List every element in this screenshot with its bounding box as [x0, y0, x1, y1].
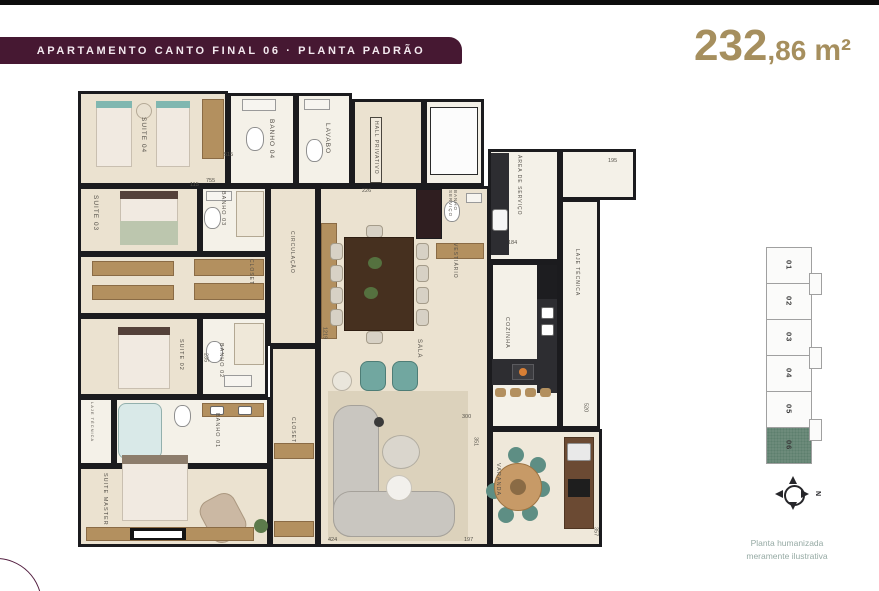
room-label-laje-tecnica-direita: LAJE TÉCNICA — [574, 249, 580, 296]
room-hall-privativo — [352, 99, 424, 186]
furniture-bed-blanket — [120, 221, 178, 245]
room-laje-tecnica-direita — [560, 199, 600, 429]
dimension-label: 1219 — [321, 327, 327, 339]
disclaimer-line-2: meramente ilustrativa — [712, 550, 862, 563]
room-label-laje-tecnica-esquerda: LAJE TÉCNICA — [90, 402, 95, 442]
furniture-centerpiece — [510, 479, 526, 495]
dimension-label: 195 — [608, 159, 617, 165]
room-label-suite-master: SUITE MASTER — [102, 473, 108, 526]
furniture-dining-chair — [366, 331, 383, 344]
furniture-armchair — [392, 361, 418, 391]
keyplan-unit-label: 02 — [785, 296, 794, 306]
furniture-bed-single — [156, 101, 190, 167]
compass-arrow-up — [789, 476, 797, 484]
furniture-toilet — [306, 139, 323, 162]
furniture-sink-counter — [224, 375, 252, 387]
furniture-side-table — [386, 475, 412, 501]
dimension-label: 184 — [508, 241, 517, 247]
furniture-bed-headboard — [122, 455, 188, 464]
area-decimal: ,86 — [767, 37, 806, 65]
furniture-dining-chair — [416, 265, 429, 282]
furniture-wardrobe — [202, 99, 224, 159]
furniture-sink — [541, 324, 554, 336]
dimension-label: 235 — [202, 353, 208, 362]
furniture-sink-counter — [466, 193, 482, 203]
compass-icon: N — [776, 477, 812, 513]
furniture-dresser — [92, 285, 174, 300]
keyplan-elevator-notch — [809, 347, 822, 369]
dimension-label: 300 — [462, 415, 471, 421]
furniture-dining-chair — [416, 287, 429, 304]
dimension-label: 115 — [190, 183, 199, 189]
room-label-suite-03: SUITE 03 — [92, 195, 99, 231]
furniture-washer — [492, 209, 508, 231]
room-label-sala: SALA — [416, 339, 422, 358]
furniture-wine-rack — [416, 189, 442, 239]
room-label-circulacao: CIRCULAÇÃO — [289, 231, 295, 274]
furniture-wardrobe — [194, 283, 264, 300]
compass-arrow-left — [775, 490, 783, 498]
furniture-coffee-table — [382, 435, 420, 469]
furniture-sink — [541, 307, 554, 319]
room-label-banho-servico: BANHO SERVIÇO — [448, 190, 458, 236]
room-label-suite-04: SUITE 04 — [140, 117, 147, 153]
room-label-vestiario: VESTIÁRIO — [452, 243, 458, 279]
furniture-sink — [238, 406, 252, 415]
floorplan: SUITE 04BANHO 04LAVABOHALL PRIVATIVOBANH… — [78, 91, 638, 547]
dimension-label: 424 — [328, 538, 337, 544]
keyplan-unit-04[interactable]: 04 — [766, 355, 812, 392]
furniture-elevator-cab — [430, 107, 478, 175]
keyplan-unit-05[interactable]: 05 — [766, 391, 812, 428]
keyplan-elevator-notch — [809, 273, 822, 295]
header-banner: APARTAMENTO CANTO FINAL 06 · PLANTA PADR… — [0, 37, 462, 64]
furniture-toilet — [204, 207, 221, 229]
furniture-tv-screen — [134, 531, 182, 538]
area-unit: m² — [814, 36, 851, 66]
furniture-sink-counter — [206, 191, 232, 201]
furniture-grill-sink — [567, 443, 591, 461]
dimension-label: 351 — [472, 437, 478, 446]
room-label-banho-02: BANHO 02 — [218, 343, 224, 378]
keyplan-unit-label: 03 — [785, 332, 794, 342]
furniture-bed-headboard — [118, 327, 170, 335]
keyplan-unit-label: 06 — [785, 440, 794, 450]
furniture-floor-lamp — [374, 417, 384, 427]
furniture-toilet — [246, 127, 264, 151]
keyplan-elevator-notch — [809, 419, 822, 441]
furniture-dining-chair — [330, 265, 343, 282]
furniture-pan — [519, 368, 527, 376]
furniture-dining-table — [344, 237, 414, 331]
furniture-dining-chair — [330, 287, 343, 304]
decorative-arc — [0, 558, 42, 591]
dimension-label: 515 — [224, 153, 233, 159]
furniture-plant — [368, 257, 382, 269]
furniture-wardrobe — [274, 521, 314, 537]
furniture-dining-chair — [330, 243, 343, 260]
furniture-shower — [236, 191, 264, 237]
page: APARTAMENTO CANTO FINAL 06 · PLANTA PADR… — [0, 0, 879, 591]
compass-arrow-right — [801, 490, 809, 498]
top-bar — [0, 0, 879, 5]
furniture-terrace-chair — [508, 447, 524, 463]
furniture-stool — [495, 388, 506, 397]
room-label-banho-03: BANHO 03 — [220, 191, 226, 226]
compass-arrow-down — [789, 502, 797, 510]
room-label-closet-suite-02: CLOSET — [248, 259, 254, 285]
dimension-label: 520 — [582, 403, 588, 412]
furniture-stool — [510, 388, 521, 397]
room-label-closet-master: CLOSET — [290, 417, 296, 443]
keyplan-unit-03[interactable]: 03 — [766, 319, 812, 356]
furniture-grill — [568, 479, 590, 497]
furniture-counter — [491, 153, 509, 255]
room-label-banho-01: BANHO 01 — [214, 413, 220, 448]
furniture-side-table — [332, 371, 352, 391]
furniture-bed-headboard — [156, 101, 190, 108]
area-int: 232 — [694, 24, 767, 68]
room-label-lavabo: LAVABO — [324, 123, 331, 154]
keyplan-unit-label: 04 — [785, 368, 794, 378]
furniture-stool — [540, 388, 551, 397]
furniture-armchair — [360, 361, 386, 391]
furniture-stool — [525, 388, 536, 397]
furniture-sink-counter — [304, 99, 330, 110]
area-value: 232 ,86 m² — [694, 24, 851, 68]
furniture-plant — [364, 287, 378, 299]
dimension-label: 197 — [464, 538, 473, 544]
furniture-wardrobe — [436, 243, 484, 259]
dimension-label: 357 — [592, 527, 598, 536]
disclaimer-line-1: Planta humanizada — [712, 537, 862, 550]
furniture-toilet — [174, 405, 191, 427]
keyplan-unit-02[interactable]: 02 — [766, 283, 812, 320]
room-label-varanda: VARANDA — [495, 463, 501, 496]
room-laje-top — [560, 149, 636, 200]
dimension-label: 226 — [362, 189, 371, 195]
dimension-label: 755 — [206, 179, 215, 185]
furniture-sink-counter — [242, 99, 276, 111]
furniture-oven-tower — [537, 265, 557, 299]
furniture-plant — [254, 519, 268, 533]
keyplan-unit-label: 01 — [785, 260, 794, 270]
furniture-dining-chair — [416, 309, 429, 326]
furniture-bed-single — [96, 101, 132, 167]
furniture-bed-double — [122, 455, 188, 521]
keyplan: 010203040506 — [766, 247, 812, 464]
furniture-dining-chair — [416, 243, 429, 260]
furniture-dining-chair — [330, 309, 343, 326]
room-label-hall-privativo: HALL PRIVATIVO — [370, 117, 382, 183]
furniture-shower — [234, 323, 264, 365]
room-laje-tecnica-esquerda — [78, 397, 114, 466]
furniture-bed-double — [118, 327, 170, 389]
compass-north-label: N — [814, 491, 821, 496]
keyplan-unit-label: 05 — [785, 404, 794, 414]
furniture-dresser — [92, 261, 174, 276]
furniture-bed-headboard — [120, 191, 178, 199]
keyplan-unit-06[interactable]: 06 — [766, 427, 812, 464]
disclaimer: Planta humanizada meramente ilustrativa — [712, 537, 862, 563]
page-title: APARTAMENTO CANTO FINAL 06 · PLANTA PADR… — [37, 45, 425, 57]
furniture-wardrobe — [274, 443, 314, 459]
room-label-banho-04: BANHO 04 — [268, 119, 275, 159]
furniture-bathtub — [118, 403, 162, 459]
furniture-bed-headboard — [96, 101, 132, 108]
room-label-suite-02: SUITE 02 — [178, 339, 184, 371]
keyplan-unit-01[interactable]: 01 — [766, 247, 812, 284]
room-label-cozinha: COZINHA — [504, 317, 510, 349]
